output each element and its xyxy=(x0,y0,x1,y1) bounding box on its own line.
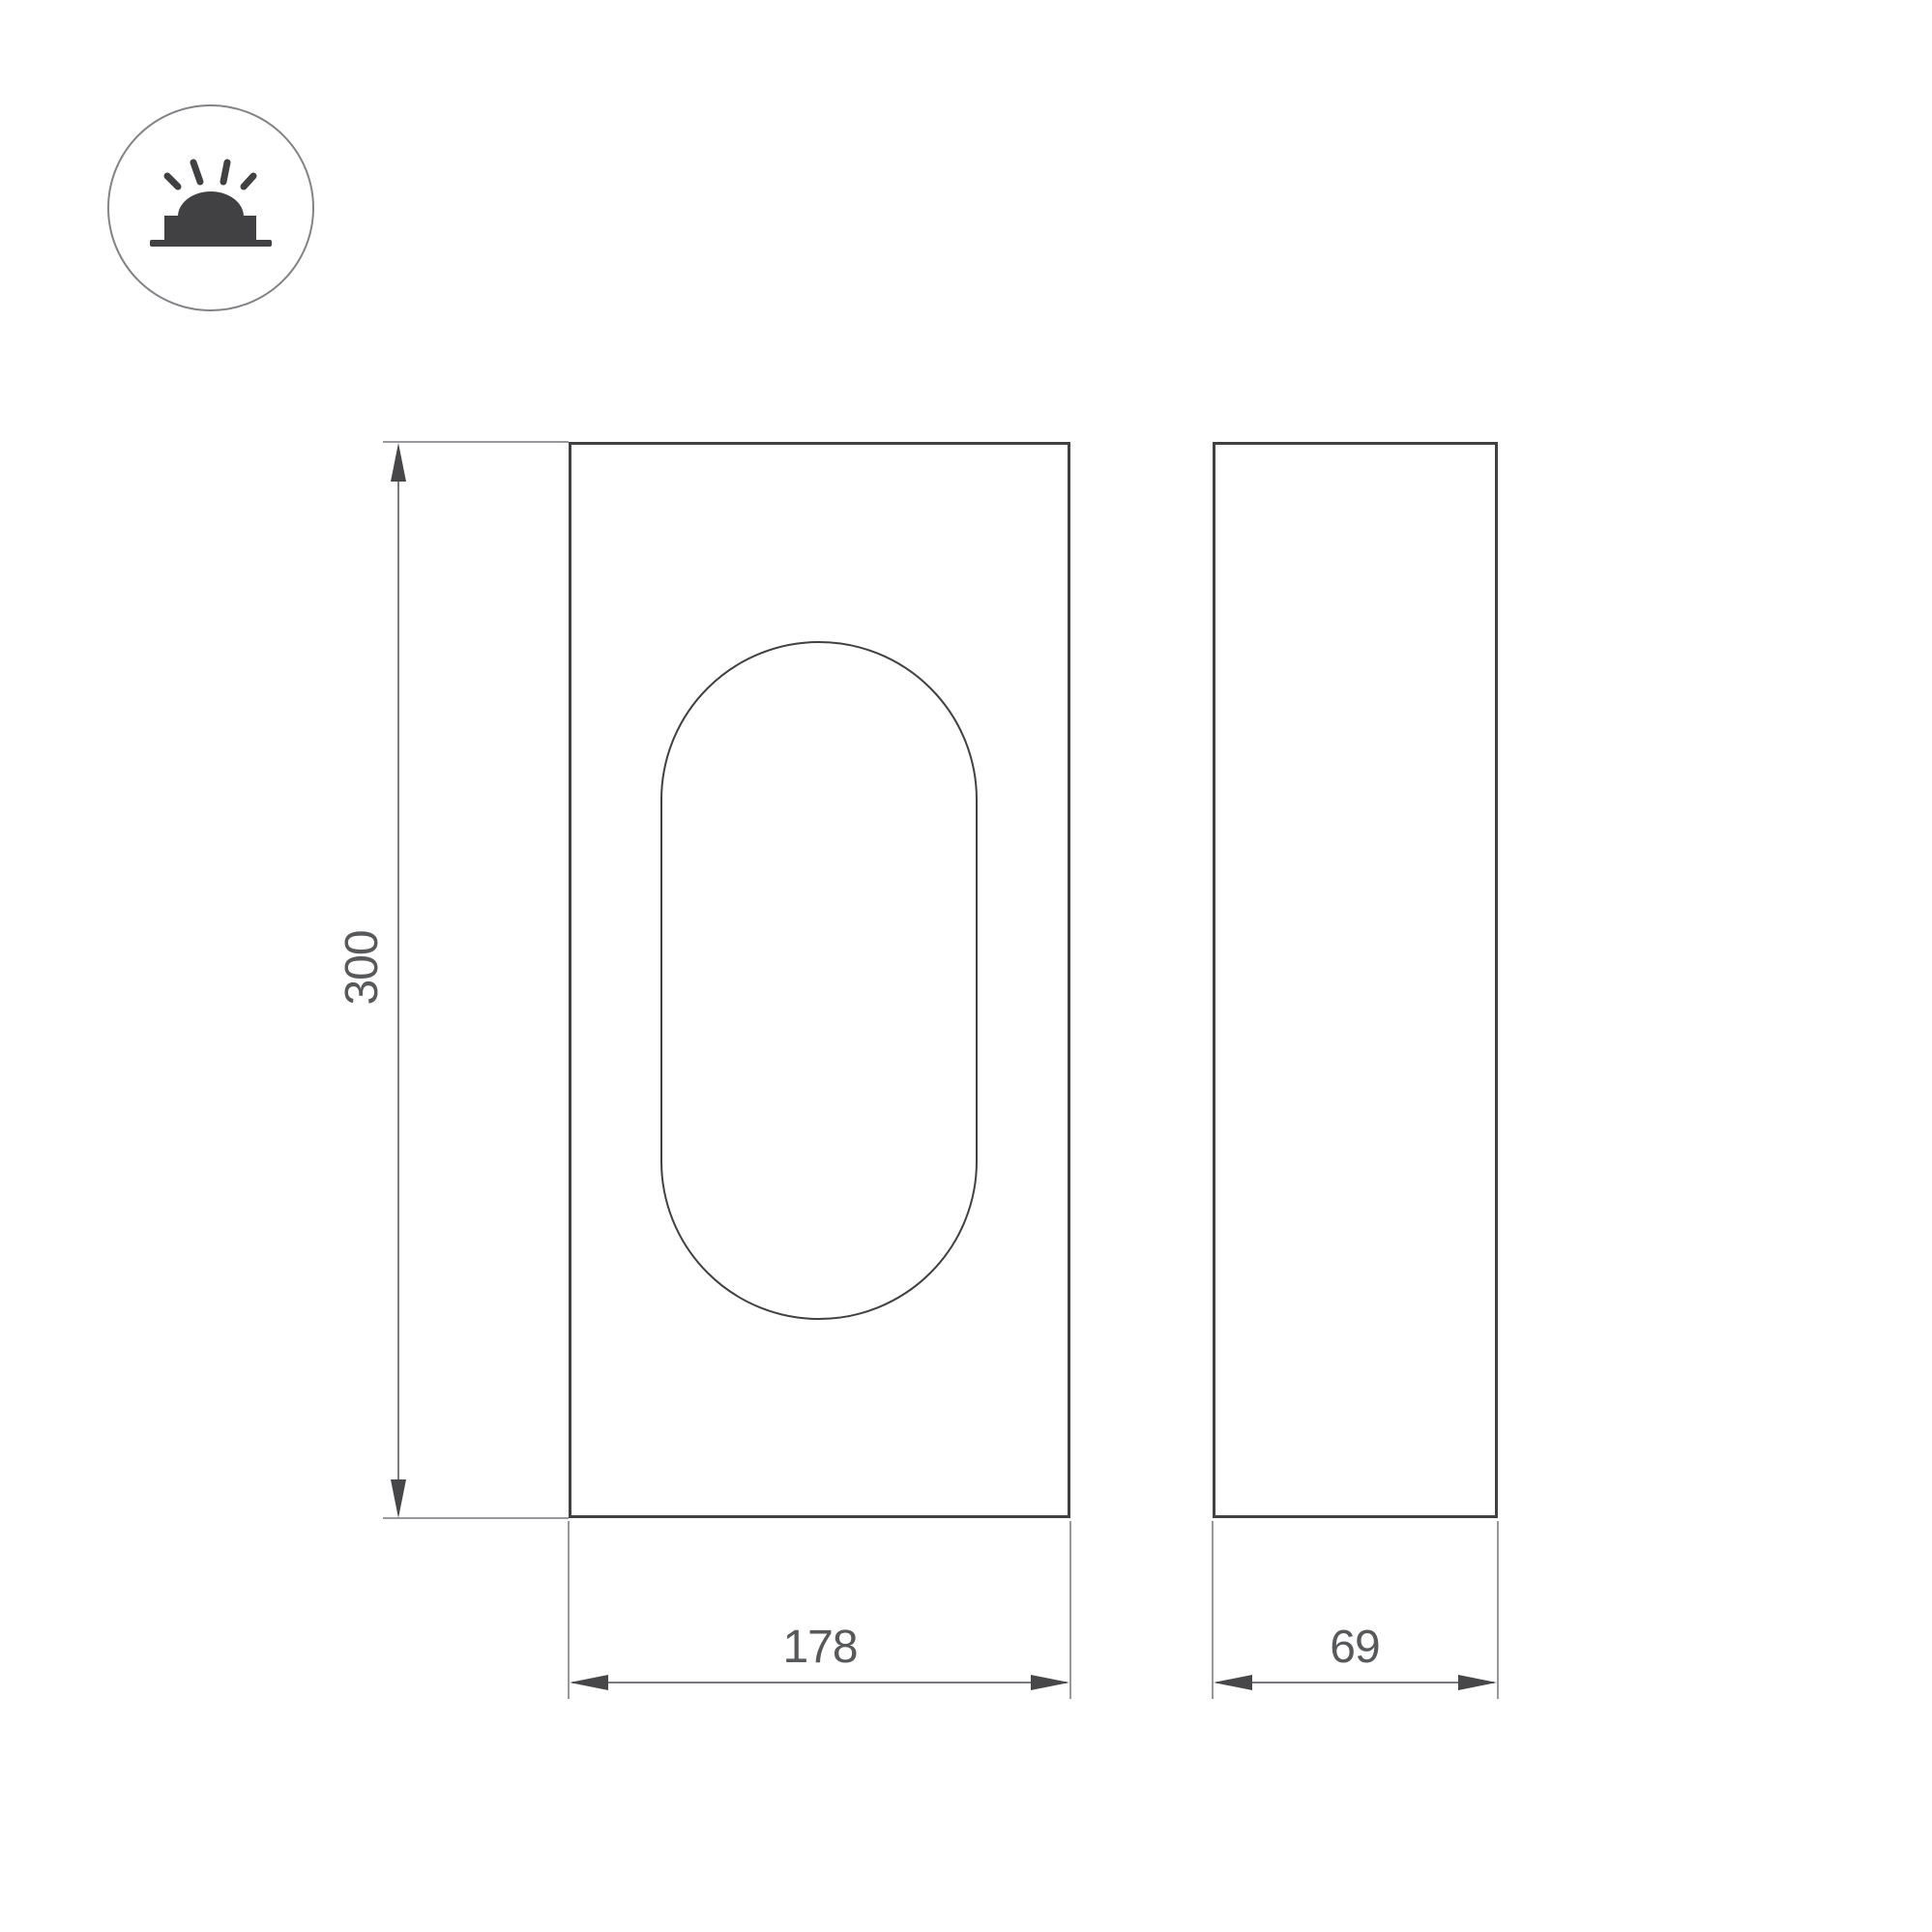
width-arrow-right-icon xyxy=(1031,1675,1069,1690)
width-arrow-left-icon xyxy=(570,1675,608,1690)
width-dimension-line xyxy=(572,1682,1067,1683)
drawing-canvas: 300 178 69 xyxy=(0,0,1932,1932)
ray-icon xyxy=(223,162,227,182)
ray-icon xyxy=(244,176,253,187)
front-view-diffuser-outline xyxy=(660,641,978,1320)
depth-extension-line-right xyxy=(1497,1521,1499,1699)
width-extension-line-left xyxy=(568,1521,570,1699)
lamp-dome xyxy=(178,191,244,217)
width-extension-line-right xyxy=(1069,1521,1071,1699)
side-view-outline xyxy=(1213,442,1498,1518)
depth-dimension-line xyxy=(1216,1682,1494,1683)
lamp-base xyxy=(150,240,272,247)
height-dimension-line xyxy=(397,447,399,1514)
height-dimension-label: 300 xyxy=(339,930,386,1005)
depth-extension-line-left xyxy=(1212,1521,1214,1699)
ray-icon xyxy=(167,176,178,187)
width-dimension-label: 178 xyxy=(782,1625,857,1671)
surface-mounted-light-icon xyxy=(106,103,315,312)
height-arrow-bottom-icon xyxy=(391,1479,406,1518)
depth-arrow-right-icon xyxy=(1458,1675,1497,1690)
height-extension-line-top xyxy=(383,441,569,443)
lamp-glyph xyxy=(150,162,272,247)
ray-icon xyxy=(193,162,200,182)
depth-arrow-left-icon xyxy=(1214,1675,1252,1690)
depth-dimension-label: 69 xyxy=(1330,1625,1379,1671)
lamp-body xyxy=(164,216,256,241)
height-arrow-top-icon xyxy=(391,443,406,482)
height-extension-line-bottom xyxy=(383,1517,569,1519)
